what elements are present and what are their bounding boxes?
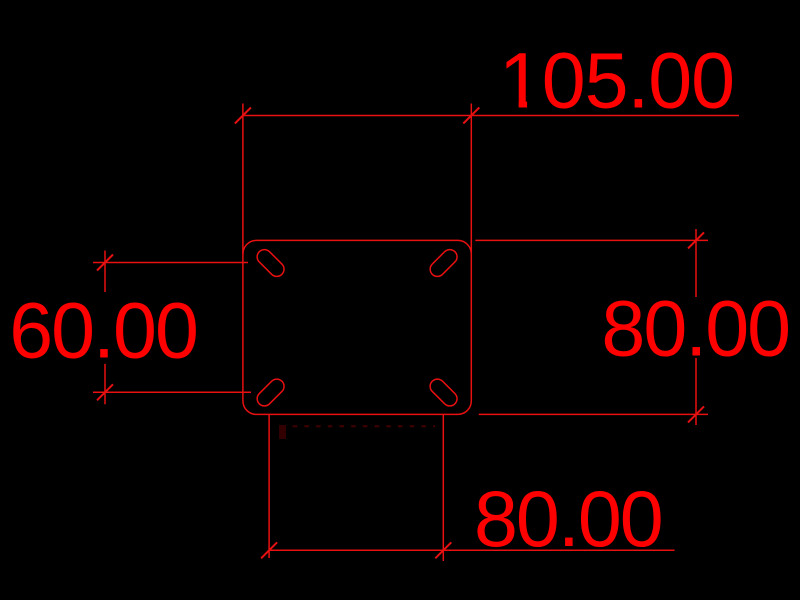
svg-text:80.00: 80.00 [601,284,789,373]
svg-text:60.00: 60.00 [9,285,197,374]
svg-text:105.00: 105.00 [499,36,734,125]
svg-text:80.00: 80.00 [474,474,662,563]
